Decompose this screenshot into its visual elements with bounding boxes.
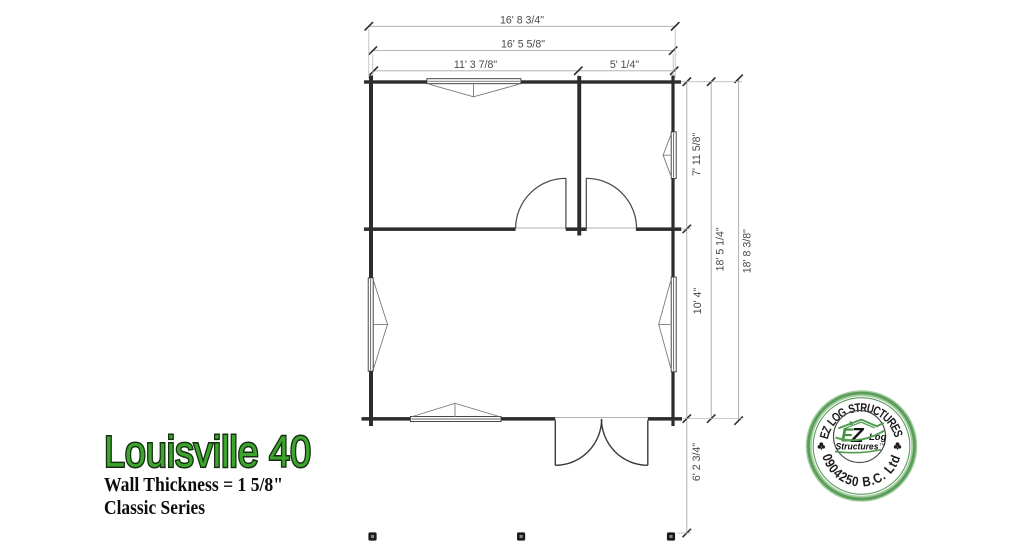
svg-text:TM: TM xyxy=(880,442,886,447)
svg-text:6' 2 3/4": 6' 2 3/4" xyxy=(691,443,703,481)
svg-text:18' 8 3/8": 18' 8 3/8" xyxy=(742,229,754,273)
svg-text:Wall Thickness = 1 5/8": Wall Thickness = 1 5/8" xyxy=(104,474,283,496)
svg-text:16' 5 5/8": 16' 5 5/8" xyxy=(501,39,545,51)
svg-text:16' 8 3/4": 16' 8 3/4" xyxy=(500,14,544,26)
svg-text:11' 3 7/8": 11' 3 7/8" xyxy=(454,59,498,71)
svg-text:7' 11 5/8": 7' 11 5/8" xyxy=(691,133,703,177)
svg-text:18' 5 1/4": 18' 5 1/4" xyxy=(715,227,727,271)
svg-text:10' 4": 10' 4" xyxy=(692,288,704,315)
svg-text:5' 1/4": 5' 1/4" xyxy=(610,59,640,71)
svg-text:Louisville 40: Louisville 40 xyxy=(104,427,311,476)
svg-text:Classic Series: Classic Series xyxy=(104,497,205,519)
